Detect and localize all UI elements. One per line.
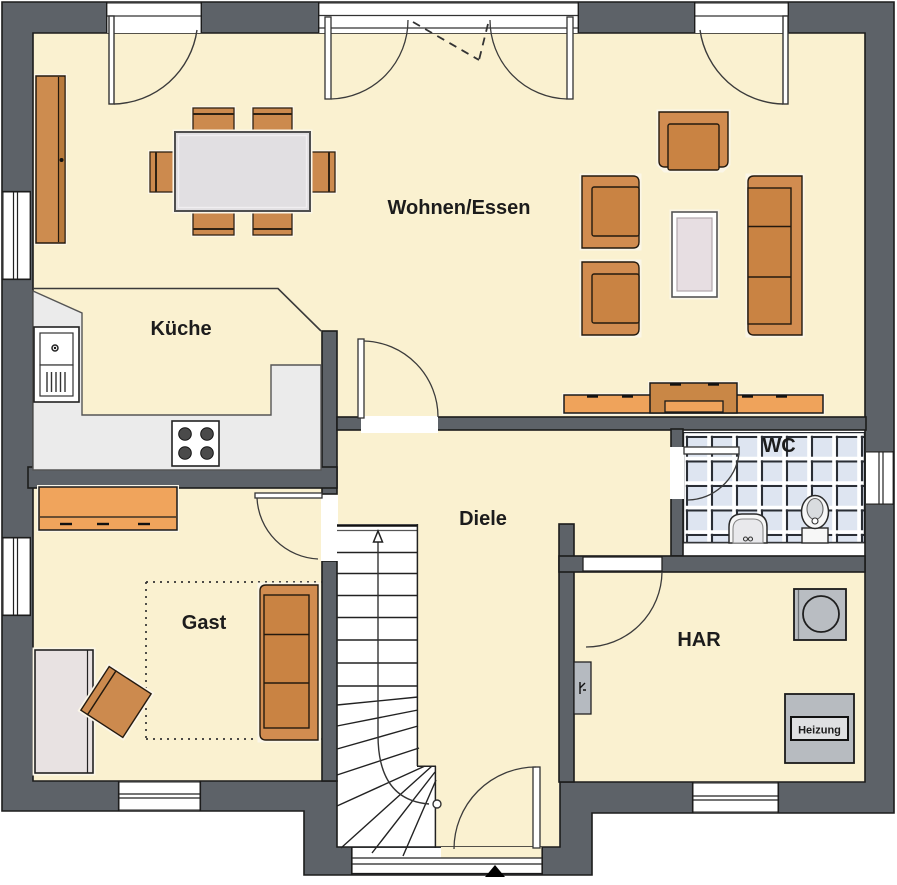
svg-text:Heizung: Heizung — [798, 725, 841, 737]
svg-text:HAR: HAR — [677, 629, 721, 651]
svg-text:Wohnen/Essen: Wohnen/Essen — [388, 197, 531, 219]
svg-text:WC: WC — [762, 435, 795, 457]
svg-text:Gast: Gast — [182, 612, 227, 634]
svg-text:Diele: Diele — [459, 508, 507, 530]
svg-text:Küche: Küche — [150, 318, 211, 340]
